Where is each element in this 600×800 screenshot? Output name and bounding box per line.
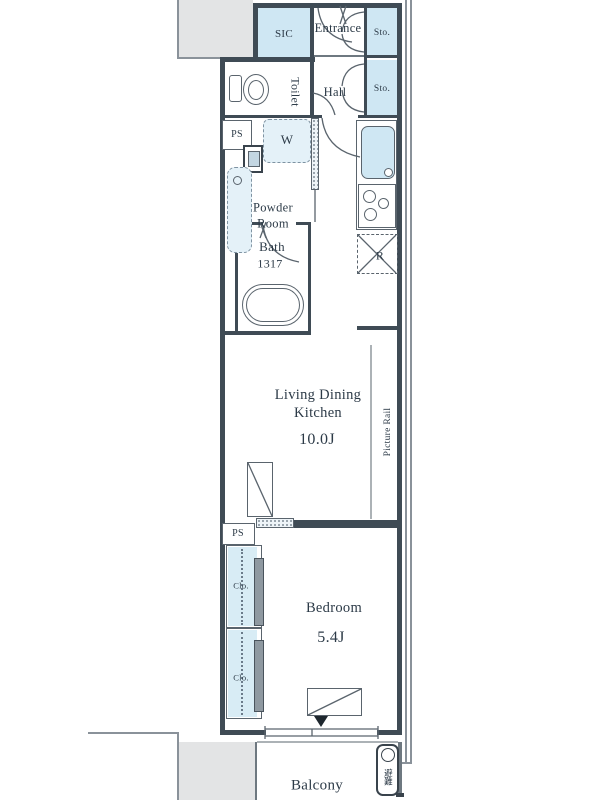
room-label-powder-room: Powder Room [241, 200, 305, 231]
room-label-storage-upper: Sto. [374, 28, 390, 40]
room-label-washer: W [281, 132, 294, 148]
room-label-closet-upper: Clo. [233, 581, 249, 592]
room-label-sic: SIC [275, 28, 293, 42]
room-label-bedroom: Bedroom [306, 599, 362, 617]
room-size-bath: 1317 [257, 257, 282, 272]
room-size-ldk: 10.0J [299, 430, 335, 450]
room-label-ldk: Living Dining Kitchen [255, 386, 381, 422]
room-size-bedroom: 5.4J [317, 628, 344, 648]
room-label-bath: Bath [259, 239, 285, 255]
picture-rail-label: Picture Rail [383, 408, 395, 457]
room-label-ps-mid: PS [232, 528, 244, 541]
room-label-ps-top: PS [231, 129, 243, 142]
floor-plan: SIC Entrance Sto. Sto. Toilet Hall PS W … [0, 0, 600, 800]
evacuation-hatch-label: 避難 [383, 769, 394, 786]
room-label-refrigerator: R [376, 249, 384, 264]
room-label-toilet: Toilet [288, 77, 303, 107]
room-label-balcony: Balcony [291, 777, 343, 796]
room-label-closet-lower: Clo. [233, 673, 249, 684]
room-label-entrance: Entrance [315, 21, 362, 37]
room-label-storage-lower: Sto. [374, 84, 390, 96]
room-label-hall: Hall [324, 85, 347, 101]
